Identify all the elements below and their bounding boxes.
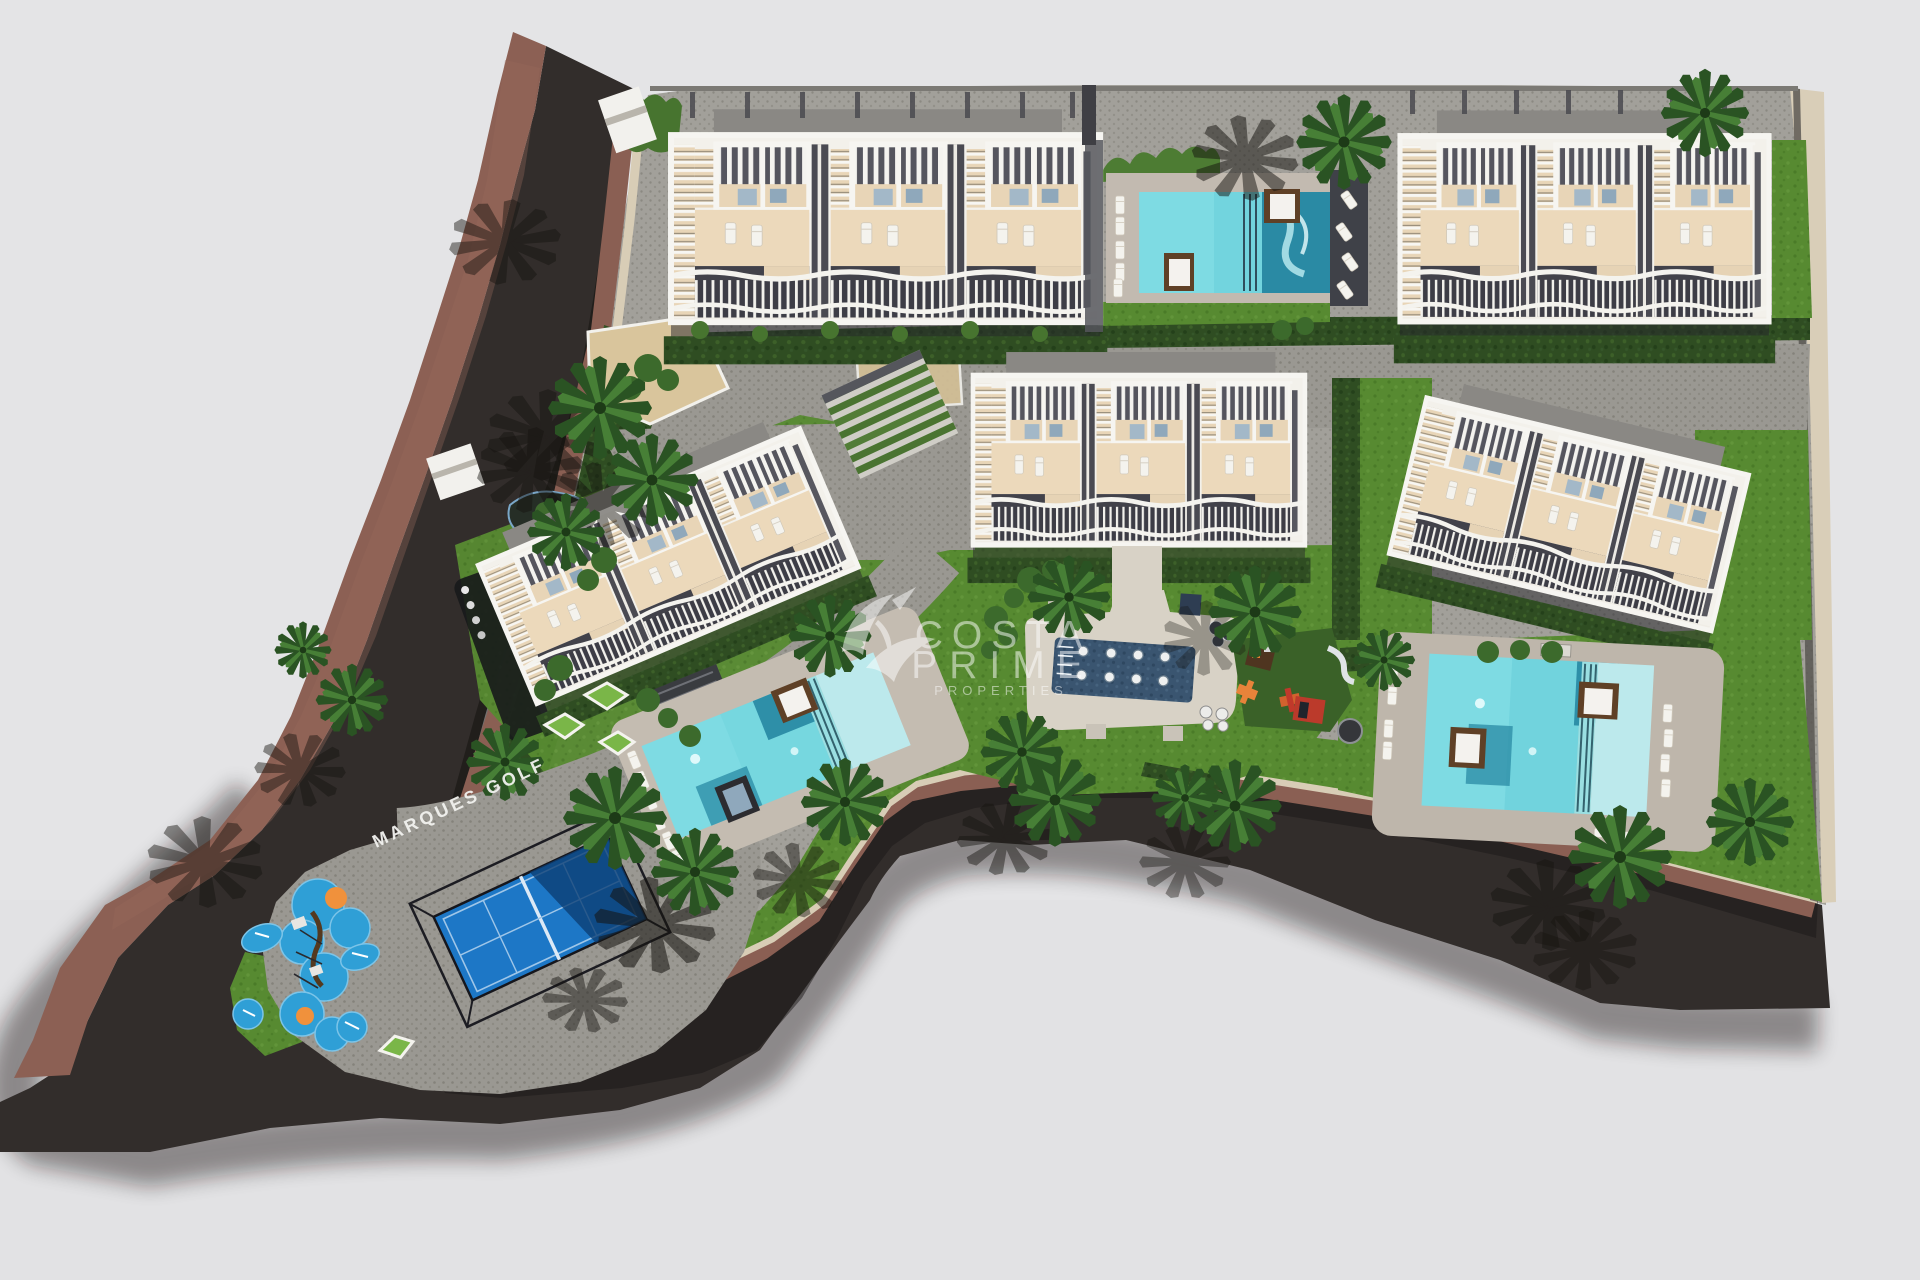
svg-text:PROPERTIES: PROPERTIES — [934, 683, 1068, 698]
svg-text:PRIME: PRIME — [911, 644, 1095, 687]
